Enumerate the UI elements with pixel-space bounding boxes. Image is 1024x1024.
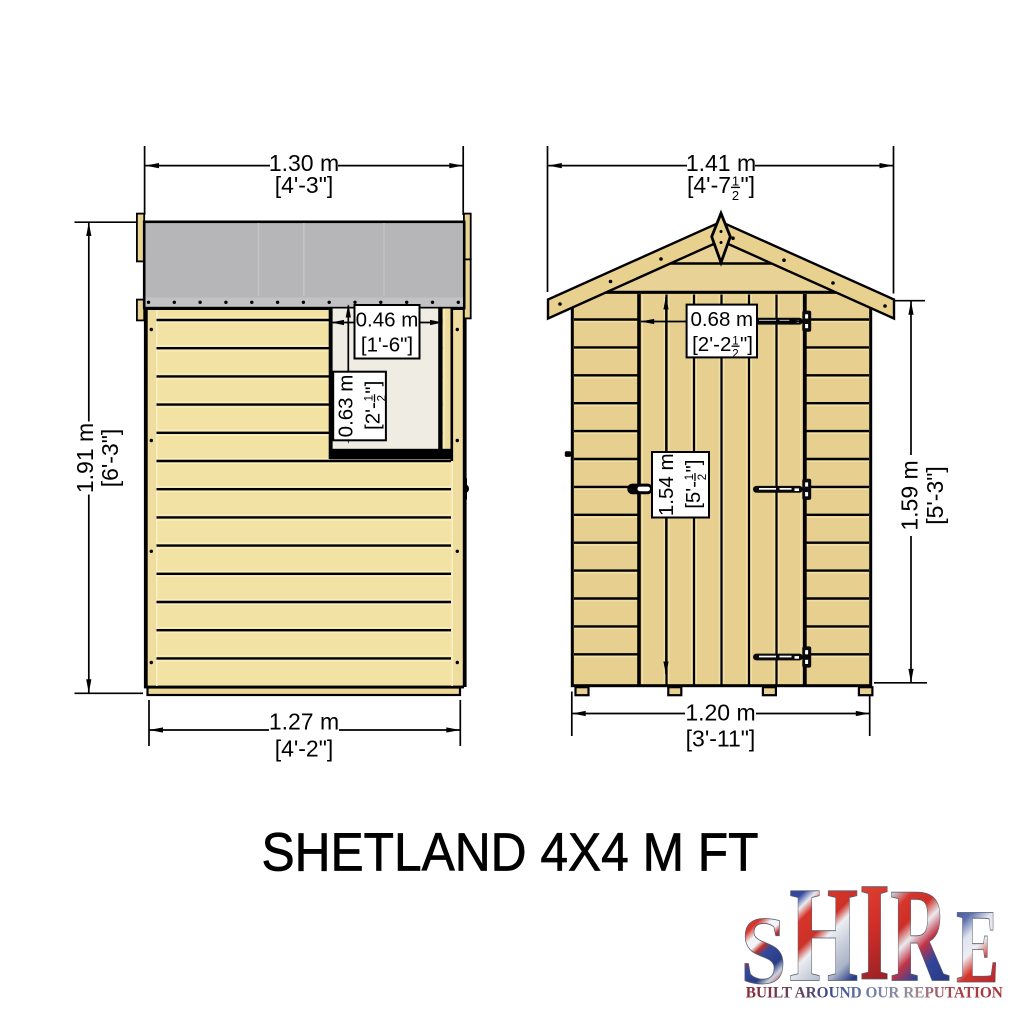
svg-text:SHETLAND 4X4 M FT: SHETLAND 4X4 M FT bbox=[262, 823, 759, 883]
svg-text:BUILT AROUND OUR REPUTATION: BUILT AROUND OUR REPUTATION bbox=[746, 985, 1003, 1002]
svg-text:[4'-7: [4'-7 bbox=[687, 172, 731, 198]
svg-text:[5'-: [5'- bbox=[682, 481, 705, 509]
svg-text:1.91 m[6'-3"]: 1.91 m[6'-3"] bbox=[72, 423, 123, 493]
svg-text:[2'-2: [2'-2 bbox=[692, 333, 731, 356]
svg-text:1.20 m: 1.20 m bbox=[685, 700, 755, 726]
svg-text:0.68 m: 0.68 m bbox=[690, 308, 753, 331]
svg-text:"]: "] bbox=[362, 381, 385, 394]
svg-text:0.63 m: 0.63 m bbox=[335, 375, 358, 438]
svg-text:[3'-11"]: [3'-11"] bbox=[686, 726, 756, 752]
svg-text:1.54 m: 1.54 m bbox=[655, 453, 678, 516]
svg-text:1: 1 bbox=[732, 174, 739, 189]
svg-text:0.46 m: 0.46 m bbox=[356, 309, 419, 332]
svg-text:2: 2 bbox=[732, 188, 739, 203]
svg-text:"]: "] bbox=[682, 460, 705, 473]
svg-text:"]: "] bbox=[740, 333, 753, 356]
svg-text:[1'-6"]: [1'-6"] bbox=[361, 334, 413, 357]
svg-text:1.59 m[5'-3"]: 1.59 m[5'-3"] bbox=[897, 460, 949, 530]
svg-text:[2'-: [2'- bbox=[362, 402, 385, 430]
svg-text:1.27 m: 1.27 m bbox=[269, 709, 339, 735]
svg-text:2: 2 bbox=[377, 395, 389, 401]
svg-text:2: 2 bbox=[732, 348, 738, 360]
svg-text:2: 2 bbox=[697, 474, 709, 480]
svg-text:"]: "] bbox=[741, 172, 756, 198]
svg-text:[4'-2"]: [4'-2"] bbox=[275, 736, 334, 762]
svg-text:[4'-3"]: [4'-3"] bbox=[275, 172, 334, 198]
